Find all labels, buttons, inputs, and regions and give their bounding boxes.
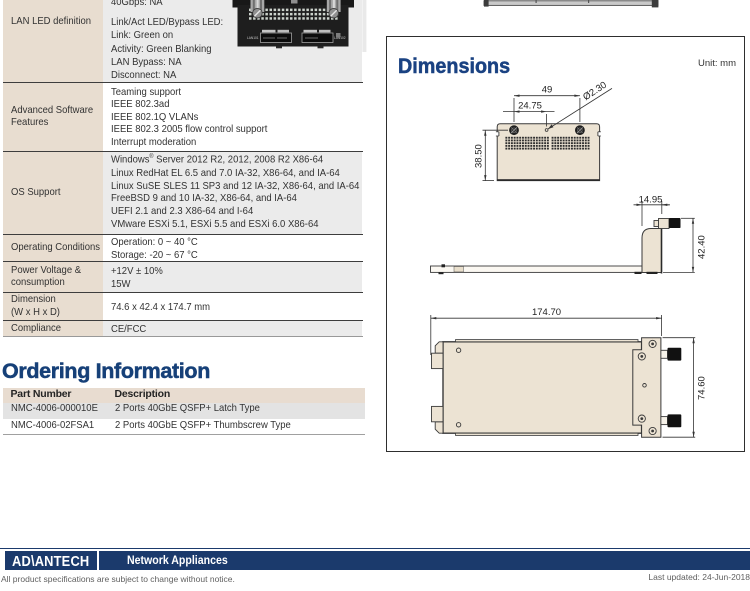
svg-text:24.75: 24.75	[518, 101, 542, 112]
svg-text:LAN101: LAN101	[247, 36, 259, 40]
svg-text:42.40: 42.40	[697, 235, 708, 259]
svg-text:49: 49	[542, 85, 553, 96]
svg-text:174.70: 174.70	[532, 307, 561, 318]
svg-text:74.60: 74.60	[697, 376, 708, 400]
svg-text:14.95: 14.95	[639, 195, 663, 206]
svg-text:38.50: 38.50	[474, 144, 485, 168]
